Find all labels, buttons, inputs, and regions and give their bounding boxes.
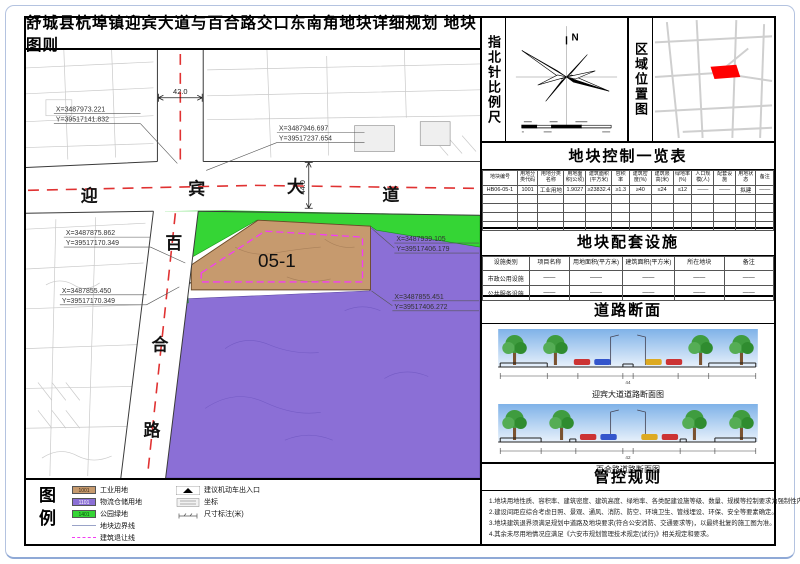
facilities-section: 地块配套设施 设施类别 项目名称 用地面积(平方米) 建筑面积(平方米) 所在地… [482, 229, 774, 297]
rule-line: 3.地块建筑退界须满足规划中道路及地块要求(符合公安消防、交通要求等)，以最终批… [489, 518, 767, 529]
svg-text:Y=39517237.654: Y=39517237.654 [279, 136, 332, 143]
section-total-width: 44 [625, 380, 631, 385]
rules-text: 1.地块用地性质、容积率、建筑密度、建筑高度、绿地率、各类配建设施等级、数量、规… [482, 491, 774, 545]
map-column: 舒城县杭埠镇迎宾大道与百合路交口东南角地块详细规划 地块图则 [26, 18, 482, 544]
legend-item-entrance: 建议机动车出入口 [176, 485, 260, 495]
empty-row [483, 213, 774, 222]
facilities-header-row: 设施类别 项目名称 用地面积(平方米) 建筑面积(平方米) 所在地块 备注 [483, 257, 774, 271]
legend-item-boundary: 地块边界线 [72, 521, 135, 531]
drawing-frame: 舒城县杭埠镇迎宾大道与百合路交口东南角地块详细规划 地块图则 [24, 16, 776, 546]
legend-title: 图例 [38, 486, 58, 540]
legend-item-park: 1401 公园绿地 [72, 509, 128, 519]
dimension-line [500, 448, 756, 454]
plan-sheet: 舒城县杭埠镇迎宾大道与百合路交口东南角地块详细规划 地块图则 [0, 0, 800, 564]
svg-text:大: 大 [287, 176, 304, 196]
location-label: 区域位置图 [629, 18, 653, 141]
dim-baihe-width: 42.0 [173, 87, 188, 96]
info-column: 指北针比例尺 [482, 18, 774, 544]
location-box: 区域位置图 [629, 18, 774, 141]
svg-text:Y=39517170.349: Y=39517170.349 [62, 298, 115, 305]
svg-text:X=3487855.450: X=3487855.450 [62, 288, 111, 295]
compass-canvas: N [506, 18, 627, 141]
svg-text:X=3487875.862: X=3487875.862 [66, 230, 115, 237]
svg-text:Y=39517406.272: Y=39517406.272 [394, 304, 447, 311]
svg-text:宾: 宾 [188, 178, 205, 198]
svg-text:百: 百 [165, 234, 182, 253]
svg-text:合: 合 [151, 335, 168, 355]
yingbin-cross-section: 44 迎宾大道道路断面图 [490, 327, 766, 400]
rule-line: 2.建设间距应综合考虑日照、景观、通风、消防、防空、环境卫生、管线埋设、环保、安… [489, 507, 767, 518]
north-n-label: N [571, 32, 578, 43]
logistics-swatch: 1101 [72, 498, 96, 506]
background-buildings [355, 122, 451, 152]
empty-row [483, 204, 774, 213]
control-table: 地块编号 用地分类代码 用地分类名称 用地面积(公顷) 建筑面积(平方米) 容积… [482, 170, 774, 231]
svg-text:Y=39517141.832: Y=39517141.832 [56, 117, 109, 124]
facilities-row: 市政公用设施 —— —— —— —— —— [483, 271, 774, 286]
minimap-plot-highlight [711, 65, 741, 79]
control-table-header-row: 地块编号 用地分类代码 用地分类名称 用地面积(公顷) 建筑面积(平方米) 容积… [483, 171, 774, 186]
north-scale-box: 指北针比例尺 [482, 18, 629, 141]
road-sections: 道路断面 [482, 297, 774, 464]
svg-text:X=3487855.451: X=3487855.451 [394, 294, 443, 301]
entrance-triangle-icon [176, 486, 200, 495]
rule-line: 1.地块用地性质、容积率、建筑密度、建筑高度、绿地率、各类配建设施等级、数量、规… [489, 496, 767, 507]
facilities-table: 设施类别 项目名称 用地面积(平方米) 建筑面积(平方米) 所在地块 备注 市政… [482, 256, 774, 301]
industrial-swatch: 1001 [72, 486, 96, 494]
svg-text:X=3487939.105: X=3487939.105 [396, 236, 445, 243]
svg-text:X=3487973.221: X=3487973.221 [56, 107, 105, 114]
section-total-width: 42 [625, 455, 631, 460]
sheet-title: 舒城县杭埠镇迎宾大道与百合路交口东南角地块详细规划 地块图则 [26, 18, 480, 50]
plot-number-label: 05-1 [258, 251, 296, 272]
empty-row [483, 195, 774, 204]
legend-item-dimension: 尺寸标注(米) [176, 509, 244, 519]
coordinate-icon [176, 498, 200, 507]
svg-text:路: 路 [143, 420, 161, 440]
svg-text:迎: 迎 [81, 185, 98, 205]
setback-line-swatch [72, 537, 96, 539]
rules-title: 管控规则 [482, 464, 774, 491]
park-swatch: 1401 [72, 510, 96, 518]
svg-text:道: 道 [382, 184, 399, 204]
dimension-line [500, 373, 756, 379]
rules-section: 管控规则 1.地块用地性质、容积率、建筑密度、建筑高度、绿地率、各类配建设施等级… [482, 464, 774, 545]
rule-line: 4.其余未尽用地情况应满足《六安市规划管理技术规定(试行)》相关规定和要求。 [489, 529, 767, 540]
legend: 图例 1001 工业用地 1101 物流仓储用地 1401 公园绿地 地块边界线 [26, 478, 480, 544]
dimension-icon [176, 510, 200, 519]
compass-rose: N [506, 18, 627, 141]
svg-text:X=3487946.697: X=3487946.697 [279, 126, 328, 133]
toprow: 指北针比例尺 [482, 18, 774, 143]
boundary-line-swatch [72, 525, 96, 527]
location-minimap [653, 18, 774, 141]
legend-item-setback: 建筑退让线 [72, 533, 135, 543]
facilities-title: 地块配套设施 [482, 229, 774, 256]
svg-text:Y=39517406.179: Y=39517406.179 [396, 246, 449, 253]
legend-item-industrial: 1001 工业用地 [72, 485, 128, 495]
control-table-data-row: HB06-05-1 1001 工业用地 1.9027 ≥23832.4 ≥1.3… [483, 186, 774, 195]
north-scale-label: 指北针比例尺 [482, 18, 506, 141]
svg-text:Y=39517170.349: Y=39517170.349 [66, 240, 119, 247]
control-table-title: 地块控制一览表 [482, 143, 774, 170]
plan-map-svg: 05-1 [26, 50, 480, 478]
control-table-section: 地块控制一览表 地块编号 用地分类代码 用地分类名称 用地面积(公顷) 建筑面积… [482, 143, 774, 229]
yingbin-section-caption: 迎宾大道道路断面图 [490, 389, 766, 400]
legend-item-coordinate: 坐标 [176, 497, 218, 507]
location-minimap-svg [653, 18, 774, 141]
road-sections-title: 道路断面 [482, 297, 774, 324]
plan-map: 05-1 [26, 50, 480, 478]
legend-item-logistics: 1101 物流仓储用地 [72, 497, 142, 507]
